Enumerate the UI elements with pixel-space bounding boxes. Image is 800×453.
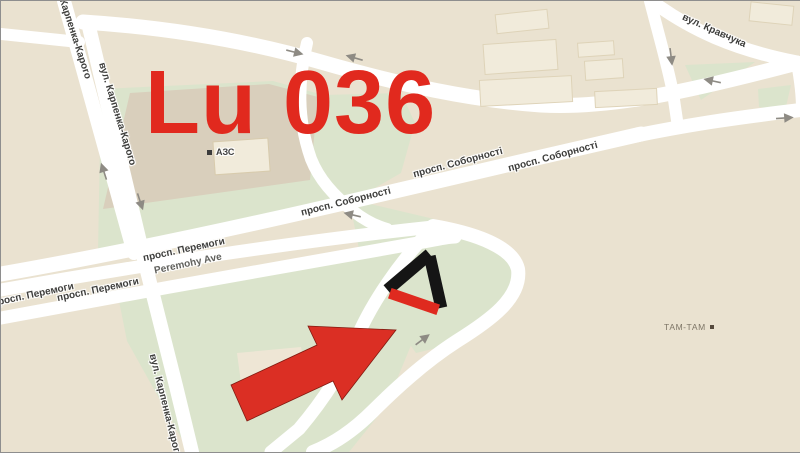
building — [578, 41, 615, 57]
building — [595, 88, 658, 107]
building — [749, 2, 794, 25]
building — [479, 76, 572, 107]
building — [483, 39, 558, 74]
poi-marker-icon — [710, 325, 714, 329]
billboard-code-overlay: Lu 036 — [145, 58, 436, 148]
map-screenshot: Карпенка-Карого вул. Карпенка-Карого вул… — [0, 0, 800, 453]
building — [584, 59, 623, 81]
poi-mall: ТАМ-ТАМ — [664, 322, 714, 332]
poi-mall-label: ТАМ-ТАМ — [664, 322, 706, 332]
